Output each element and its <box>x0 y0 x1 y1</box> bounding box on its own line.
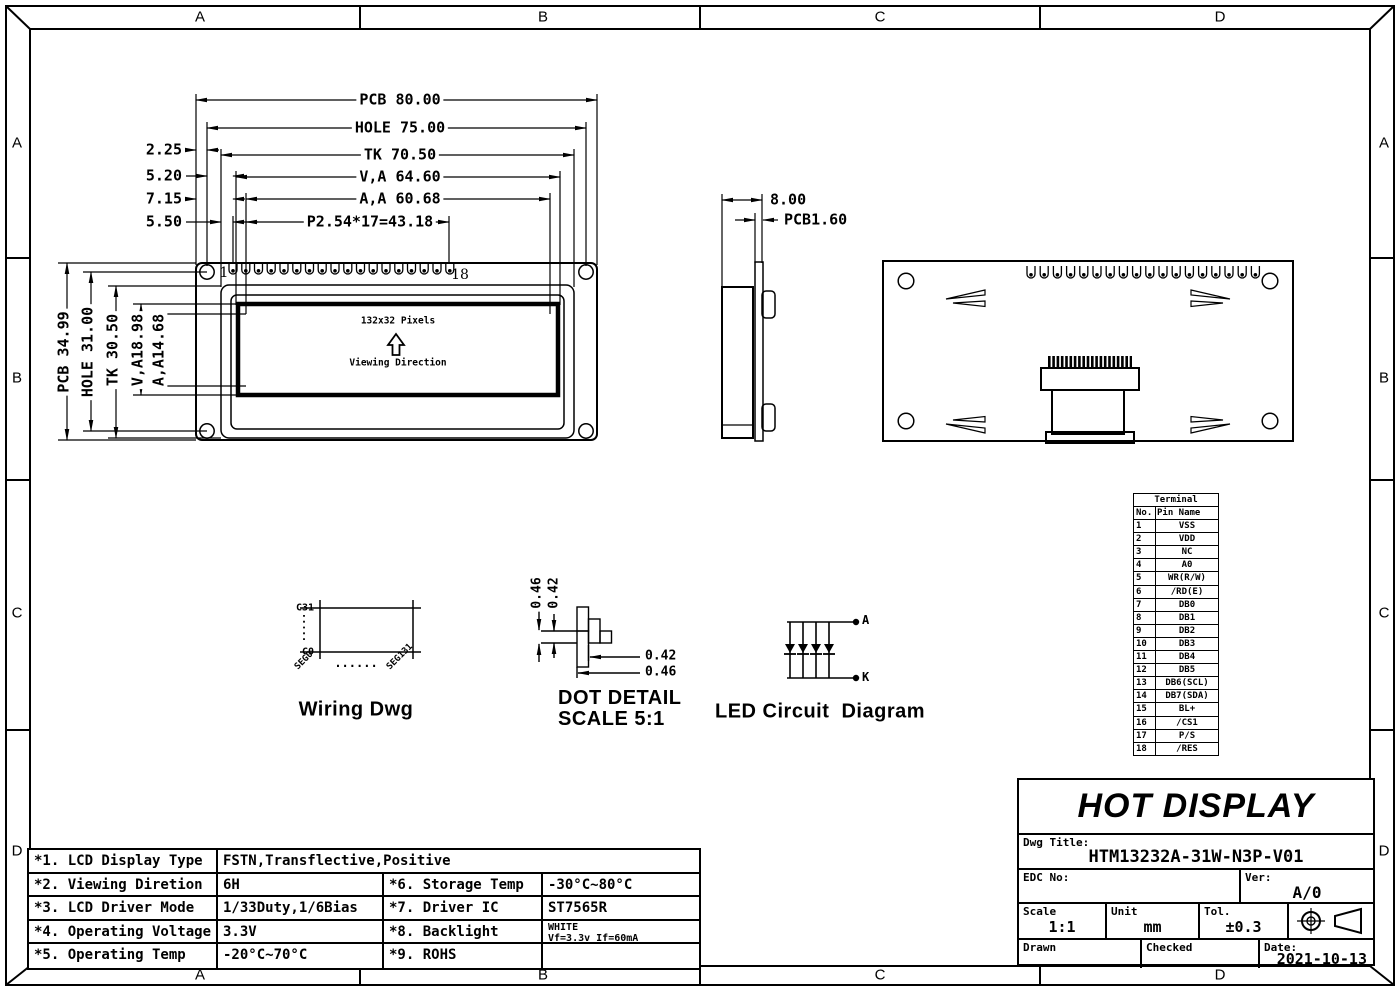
dim-pin-pitch: P2.54*17=43.18 <box>304 213 436 230</box>
spec-label: *3. LCD Driver Mode <box>29 897 218 921</box>
spec-value: -20°C~70°C <box>218 944 384 968</box>
unit-cell: Unit mm <box>1107 904 1200 938</box>
spec-label: *5. Operating Temp <box>29 944 218 968</box>
spec-label: *9. ROHS <box>384 944 543 968</box>
zone-left-b: B <box>12 370 22 387</box>
pin-name: /RD(E) <box>1156 586 1218 599</box>
zone-right-a: A <box>1379 135 1389 152</box>
backlight-color: WHITE <box>548 922 699 933</box>
dim-tk-height: TK 30.50 <box>104 311 121 389</box>
pin-no: 1 <box>1134 520 1156 533</box>
spec-table: *1. LCD Display Type FSTN,Transflective,… <box>27 848 701 970</box>
dim-offset-3: 7.15 <box>143 190 185 207</box>
dim-aa-height: A,A14.68 <box>150 311 167 389</box>
wiring-com-top-label: C31 <box>296 602 314 614</box>
front-view <box>196 262 597 440</box>
dim-offset-4: 5.50 <box>143 213 185 230</box>
pin-name: P/S <box>1156 730 1218 743</box>
zone-right-c: C <box>1379 605 1390 622</box>
spec-label: *1. LCD Display Type <box>29 850 218 874</box>
terminal-pin-table: Terminal No. Pin Name 1VSS 2VDD 3NC 4A0 … <box>1133 493 1219 756</box>
checked-label: Checked <box>1146 941 1192 954</box>
dim-offset-1: 2.25 <box>143 141 185 158</box>
ver-cell: Ver: A/0 <box>1241 870 1373 902</box>
pin-no: 10 <box>1134 638 1156 651</box>
dim-hole-height: HOLE 31.00 <box>79 304 96 400</box>
wiring-dots: ...... <box>334 657 377 671</box>
pin-name: VSS <box>1156 520 1218 533</box>
dwg-title-label: Dwg Title: <box>1023 836 1089 849</box>
pin-no: 13 <box>1134 677 1156 690</box>
dim-pcb-height: PCB 34.99 <box>55 308 72 395</box>
pin-name: /CS1 <box>1156 717 1218 730</box>
back-pad-row <box>1027 266 1259 278</box>
led-anode-label: A <box>862 614 869 628</box>
checked-cell: Checked <box>1142 940 1260 968</box>
pin-name: WR(R/W) <box>1156 572 1218 585</box>
signature-row: Drawn Checked Date: 2021-10-13 <box>1019 938 1373 964</box>
led-symbol-icon <box>810 644 822 654</box>
led-symbol-icon <box>784 644 796 654</box>
zone-top-d: D <box>1215 9 1226 26</box>
ver-label: Ver: <box>1245 871 1272 884</box>
pin-no: 2 <box>1134 533 1156 546</box>
pin-no: 12 <box>1134 664 1156 677</box>
cog-connector <box>1041 362 1139 443</box>
spec-value: 6H <box>218 874 384 898</box>
edc-row: EDC No: Ver: A/0 <box>1019 868 1373 902</box>
zone-bottom-d: D <box>1215 967 1226 984</box>
scale-cell: Scale 1:1 <box>1019 904 1107 938</box>
tol-cell: Tol. ±0.3 <box>1200 904 1289 938</box>
pin-name: DB4 <box>1156 651 1218 664</box>
spec-label: *2. Viewing Diretion <box>29 874 218 898</box>
bezel-clip-icon <box>1191 290 1230 307</box>
led-circuit <box>784 620 858 681</box>
dim-side-pcb-thickness: PCB1.60 <box>781 211 850 228</box>
dot-dim-h2: 0.46 <box>645 666 676 681</box>
pin-name: DB1 <box>1156 612 1218 625</box>
edc-label: EDC No: <box>1023 871 1069 884</box>
spec-label: *7. Driver IC <box>384 897 543 921</box>
spec-value: -30°C~80°C <box>543 874 699 898</box>
display-resolution-label: 132x32 Pixels <box>361 317 435 328</box>
drawn-label: Drawn <box>1023 941 1056 954</box>
zone-left-c: C <box>12 605 23 622</box>
dim-pcb-width: PCB 80.00 <box>356 91 443 108</box>
pin-name: DB7(SDA) <box>1156 690 1218 703</box>
date-cell: Date: 2021-10-13 <box>1260 940 1373 968</box>
pin-name: VDD <box>1156 533 1218 546</box>
pin-name: BL+ <box>1156 703 1218 716</box>
dot-dim-v2: 0.42 <box>548 574 563 611</box>
dim-hole-width: HOLE 75.00 <box>352 119 448 136</box>
zone-top-c: C <box>875 9 886 26</box>
company-name: HOT DISPLAY <box>1077 787 1314 826</box>
wiring-title: Wiring Dwg <box>299 700 414 721</box>
bezel-clip-icon <box>946 290 985 307</box>
spec-value: ST7565R <box>543 897 699 921</box>
terminal-col-pin-name: Pin Name <box>1156 507 1218 520</box>
back-view <box>883 261 1293 443</box>
drawn-cell: Drawn <box>1019 940 1142 968</box>
projection-symbol-cell <box>1289 904 1373 938</box>
pin-name: DB5 <box>1156 664 1218 677</box>
terminal-col-no: No. <box>1134 507 1156 520</box>
edc-cell: EDC No: <box>1019 870 1241 902</box>
scale-row: Scale 1:1 Unit mm Tol. ±0.3 <box>1019 902 1373 938</box>
led-circuit-title: LED Circuit Diagram <box>715 702 925 723</box>
dim-aa-width: A,A 60.68 <box>356 190 443 207</box>
zone-bottom-c: C <box>875 967 886 984</box>
title-block: HOT DISPLAY Dwg Title: HTM13232A-31W-N3P… <box>1017 778 1375 966</box>
viewing-direction-arrow-icon <box>388 334 404 355</box>
pin-no: 11 <box>1134 651 1156 664</box>
dot-detail-title: DOT DETAIL <box>558 688 682 709</box>
pin-name: DB6(SCL) <box>1156 677 1218 690</box>
pin-no: 18 <box>1134 743 1156 755</box>
engineering-drawing-sheet: A B C D A B C D A B C D A B C D PCB 80.0… <box>0 0 1400 991</box>
zone-left-d: D <box>12 843 23 860</box>
dwg-title-row: Dwg Title: HTM13232A-31W-N3P-V01 <box>1019 833 1373 868</box>
dim-va-width: V,A 64.60 <box>356 168 443 185</box>
spec-value-backlight: WHITE Vf=3.3v If=60mA <box>543 921 699 945</box>
dot-dim-h1: 0.42 <box>645 650 676 665</box>
pin-no: 9 <box>1134 625 1156 638</box>
company-logo-row: HOT DISPLAY <box>1019 780 1373 833</box>
pin-no: 6 <box>1134 586 1156 599</box>
pin-no: 17 <box>1134 730 1156 743</box>
led-cathode-label: K <box>862 671 869 685</box>
zone-top-b: B <box>538 9 548 26</box>
spec-label: *8. Backlight <box>384 921 543 945</box>
pin-no: 14 <box>1134 690 1156 703</box>
dim-tk-width: TK 70.50 <box>361 146 439 163</box>
backlight-rating: Vf=3.3v If=60mA <box>548 933 699 944</box>
unit-label: Unit <box>1111 905 1138 918</box>
pin-number-last: 18 <box>451 267 469 283</box>
pin-name: /RES <box>1156 743 1218 755</box>
side-view <box>722 194 778 441</box>
pin-no: 8 <box>1134 612 1156 625</box>
pin-no: 16 <box>1134 717 1156 730</box>
zone-right-b: B <box>1379 370 1389 387</box>
pin-no: 15 <box>1134 703 1156 716</box>
pin-no: 3 <box>1134 546 1156 559</box>
date-label: Date: <box>1264 941 1297 954</box>
dim-side-total: 8.00 <box>767 191 809 208</box>
scale-label: Scale <box>1023 905 1056 918</box>
spec-value <box>543 944 699 968</box>
pin-number-first: 1 <box>220 265 229 281</box>
dot-dim-v1: 0.46 <box>531 574 546 611</box>
pin-no: 5 <box>1134 572 1156 585</box>
spec-label: *4. Operating Voltage <box>29 921 218 945</box>
zone-top-a: A <box>195 9 205 26</box>
terminal-table-title: Terminal <box>1134 494 1218 507</box>
spec-value: 3.3V <box>218 921 384 945</box>
spec-value: 1/33Duty,1/6Bias <box>218 897 384 921</box>
bezel-clip-icon <box>1191 417 1230 434</box>
dim-offset-2: 5.20 <box>143 167 185 184</box>
dim-va-height: V,A18.98 <box>129 311 146 389</box>
pin-name: DB3 <box>1156 638 1218 651</box>
pin-name: NC <box>1156 546 1218 559</box>
spec-label: *6. Storage Temp <box>384 874 543 898</box>
zone-right-d: D <box>1379 843 1390 860</box>
pin-name: DB2 <box>1156 625 1218 638</box>
pin-no: 7 <box>1134 599 1156 612</box>
spec-value: FSTN,Transflective,Positive <box>218 850 699 874</box>
viewing-direction-label: Viewing Direction <box>349 359 446 370</box>
pin-name: DB0 <box>1156 599 1218 612</box>
dot-detail-scale: SCALE 5:1 <box>558 709 665 730</box>
pin-no: 4 <box>1134 559 1156 572</box>
tol-label: Tol. <box>1204 905 1231 918</box>
led-symbol-icon <box>823 644 835 654</box>
dot-detail <box>539 607 640 678</box>
projection-symbol-icon <box>1293 905 1369 937</box>
pin-name: A0 <box>1156 559 1218 572</box>
zone-left-a: A <box>12 135 22 152</box>
bezel-clip-icon <box>946 417 985 434</box>
led-symbol-icon <box>797 644 809 654</box>
